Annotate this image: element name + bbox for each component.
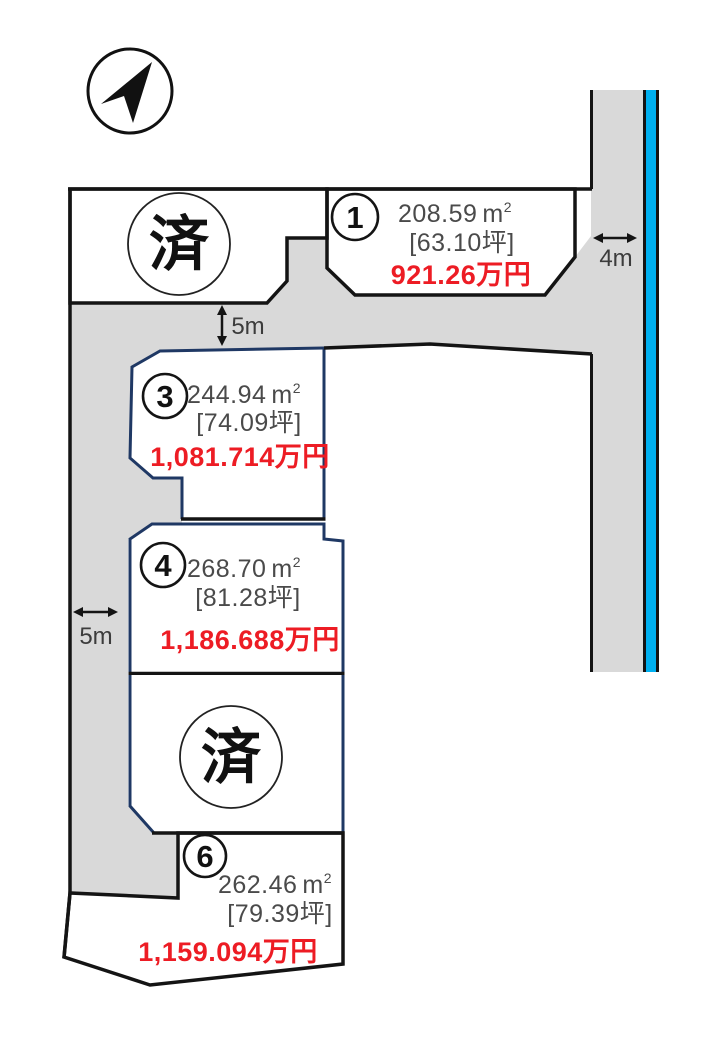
plot-map-svg: 済 1 208.59m2 [63.10坪] 921.26万円 3 244.94m… bbox=[0, 0, 720, 1040]
left-boundary-line bbox=[64, 188, 70, 958]
plot-3-number: 3 bbox=[156, 379, 173, 414]
plot-3-tsubo: [74.09坪] bbox=[196, 409, 301, 437]
plot-6-price: 1,159.094万円 bbox=[138, 937, 318, 967]
plot-4-tsubo: [81.28坪] bbox=[195, 584, 300, 612]
plot-3-price: 1,081.714万円 bbox=[150, 442, 330, 472]
plot-4-price: 1,186.688万円 bbox=[160, 625, 340, 655]
land-plot-map: 済 1 208.59m2 [63.10坪] 921.26万円 3 244.94m… bbox=[0, 0, 720, 1040]
road-width-label-4m: 4m bbox=[599, 245, 632, 272]
plot-6-area: 262.46m2 bbox=[218, 870, 332, 899]
dimension-right-road: 4m bbox=[593, 233, 637, 272]
road-width-label-5m-top: 5m bbox=[231, 313, 264, 340]
plot-1-area: 208.59m2 bbox=[398, 199, 512, 228]
plot-6-number: 6 bbox=[196, 839, 213, 874]
plot-sold-middle-label: 済 bbox=[201, 724, 262, 791]
plot-1-tsubo: [63.10坪] bbox=[409, 229, 514, 257]
plot-1: 1 208.59m2 [63.10坪] 921.26万円 bbox=[327, 189, 575, 295]
compass bbox=[88, 49, 172, 133]
plot-4: 4 268.70m2 [81.28坪] 1,186.688万円 bbox=[129, 524, 345, 674]
plot-sold-top-label: 済 bbox=[149, 211, 210, 278]
road-width-label-5m-left: 5m bbox=[79, 623, 112, 650]
waterway-stripe bbox=[646, 90, 656, 672]
plot-6-tsubo: [79.39坪] bbox=[227, 900, 332, 928]
plot-4-number: 4 bbox=[154, 548, 172, 583]
plot-3-area: 244.94m2 bbox=[187, 380, 301, 409]
plot-1-number: 1 bbox=[346, 200, 363, 235]
plot-sold-middle: 済 bbox=[130, 675, 345, 833]
plot-4-area: 268.70m2 bbox=[187, 554, 301, 583]
plot-1-price: 921.26万円 bbox=[391, 260, 532, 290]
